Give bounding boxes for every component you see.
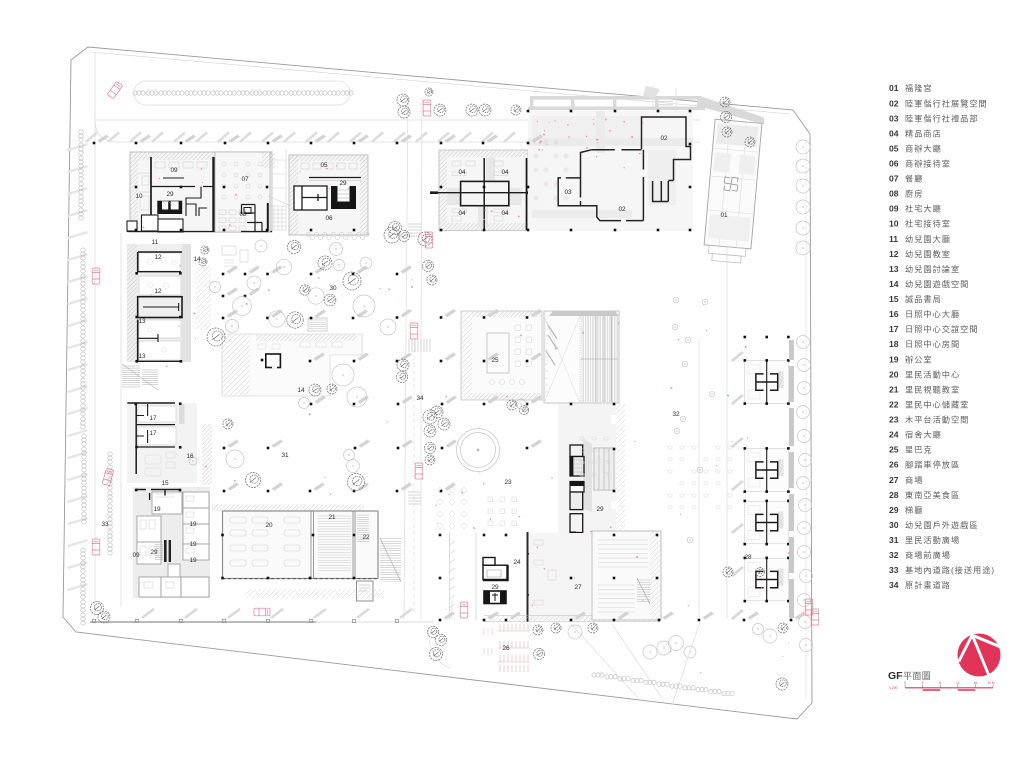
- svg-text:14: 14: [889, 279, 899, 289]
- svg-text:13: 13: [138, 353, 146, 360]
- svg-text:02: 02: [660, 135, 668, 142]
- svg-text:31: 31: [281, 452, 289, 459]
- svg-text:01: 01: [889, 83, 899, 93]
- svg-text:里民活動廣場: 里民活動廣場: [905, 535, 960, 545]
- svg-text:GF: GF: [888, 670, 903, 682]
- svg-text:辦公室: 辦公室: [905, 354, 933, 364]
- svg-text:16: 16: [889, 309, 899, 319]
- svg-text:幼兒園大廳: 幼兒園大廳: [905, 234, 951, 244]
- svg-text:商辦接待室: 商辦接待室: [905, 159, 951, 169]
- svg-text:12: 12: [889, 249, 899, 259]
- svg-text:20: 20: [265, 522, 273, 529]
- svg-text:03: 03: [889, 113, 899, 123]
- svg-text:23: 23: [889, 415, 899, 425]
- svg-text:09: 09: [170, 167, 178, 174]
- svg-text:22: 22: [889, 400, 899, 410]
- svg-text:26: 26: [889, 460, 899, 470]
- svg-text:12: 12: [154, 254, 162, 261]
- svg-text:陸軍偕行社禮品部: 陸軍偕行社禮品部: [905, 113, 979, 123]
- svg-text:21: 21: [328, 514, 336, 521]
- svg-text:誠品書局: 誠品書局: [905, 294, 942, 304]
- svg-text:12: 12: [956, 681, 960, 685]
- svg-text:25: 25: [889, 445, 899, 455]
- svg-text:17: 17: [149, 415, 157, 422]
- svg-text:19: 19: [189, 541, 197, 548]
- svg-text:28: 28: [889, 490, 899, 500]
- svg-text:15: 15: [889, 294, 899, 304]
- svg-text:04: 04: [501, 210, 509, 217]
- svg-text:10: 10: [135, 193, 143, 200]
- svg-text:21: 21: [889, 384, 899, 394]
- svg-text:幼兒園遊戲空間: 幼兒園遊戲空間: [905, 279, 969, 289]
- svg-text:里民中心儲藏室: 里民中心儲藏室: [905, 400, 969, 410]
- svg-text:06: 06: [325, 215, 333, 222]
- svg-text:餐廳: 餐廳: [905, 174, 923, 184]
- svg-text:05: 05: [320, 162, 328, 169]
- svg-text:24: 24: [889, 430, 899, 440]
- svg-text:03: 03: [564, 189, 572, 196]
- svg-text:09: 09: [889, 204, 899, 214]
- svg-text:07: 07: [241, 176, 249, 183]
- svg-text:社宅接待室: 社宅接待室: [905, 219, 951, 229]
- svg-text:33: 33: [101, 521, 109, 528]
- svg-text:07: 07: [889, 174, 899, 184]
- svg-text:09: 09: [132, 552, 140, 559]
- svg-text:日照中心房間: 日照中心房間: [905, 339, 960, 349]
- svg-text:梯廳: 梯廳: [905, 505, 923, 515]
- svg-text:20: 20: [889, 369, 899, 379]
- svg-text:幼兒園教室: 幼兒園教室: [905, 249, 951, 259]
- svg-text:14: 14: [297, 387, 305, 394]
- svg-text:08: 08: [239, 211, 247, 218]
- svg-text:29: 29: [166, 191, 174, 198]
- svg-text:29: 29: [150, 549, 158, 556]
- svg-text:30: 30: [889, 520, 899, 530]
- svg-text:商辦大廳: 商辦大廳: [905, 143, 942, 153]
- svg-text:幼兒園討論室: 幼兒園討論室: [905, 264, 960, 274]
- svg-text:平面圖: 平面圖: [903, 671, 931, 681]
- svg-text:19: 19: [889, 354, 899, 364]
- svg-text:15: 15: [161, 480, 169, 487]
- svg-text:陸軍偕行社展覽空間: 陸軍偕行社展覽空間: [905, 98, 988, 108]
- svg-text:星巴克: 星巴克: [905, 446, 933, 455]
- svg-text:商場: 商場: [905, 475, 923, 485]
- svg-text:29: 29: [339, 180, 347, 187]
- svg-text:32: 32: [672, 411, 680, 418]
- svg-text:里民活動中心: 里民活動中心: [905, 369, 960, 379]
- svg-text:10: 10: [889, 219, 899, 229]
- svg-text:基地內道路(接送用途): 基地內道路(接送用途): [905, 565, 995, 575]
- svg-text:13: 13: [889, 264, 899, 274]
- svg-text:01: 01: [720, 212, 728, 219]
- svg-text:日照中心交誼空間: 日照中心交誼空間: [905, 324, 979, 334]
- svg-text:社宅大廳: 社宅大廳: [905, 204, 942, 214]
- svg-text:廚房: 廚房: [905, 189, 923, 199]
- svg-text:02: 02: [618, 206, 626, 213]
- svg-text:30: 30: [329, 285, 337, 292]
- svg-text:宿舍大廳: 宿舍大廳: [905, 430, 942, 440]
- svg-text:32: 32: [889, 550, 899, 560]
- svg-text:里民視聽教室: 里民視聽教室: [905, 384, 960, 394]
- svg-text:14: 14: [193, 256, 201, 263]
- svg-text:27: 27: [574, 584, 582, 591]
- svg-text:19: 19: [153, 506, 161, 513]
- svg-text:34: 34: [416, 395, 424, 402]
- svg-text:29: 29: [889, 505, 899, 515]
- svg-text:24: 24: [513, 559, 521, 566]
- svg-text:幼兒園戶外遊戲區: 幼兒園戶外遊戲區: [905, 520, 979, 530]
- svg-text:13: 13: [138, 318, 146, 325]
- svg-text:日照中心大廳: 日照中心大廳: [905, 309, 960, 319]
- svg-text:08: 08: [889, 189, 899, 199]
- svg-text:33: 33: [889, 565, 899, 575]
- svg-text:11: 11: [889, 234, 898, 244]
- svg-text:4: 4: [922, 681, 924, 685]
- svg-text:05: 05: [889, 143, 899, 153]
- svg-text:18: 18: [889, 339, 899, 349]
- svg-text:19: 19: [189, 557, 197, 564]
- svg-text:福隆宮: 福隆宮: [905, 83, 933, 93]
- svg-text:腳踏車停放區: 腳踏車停放區: [905, 460, 960, 470]
- svg-text:04: 04: [889, 128, 899, 138]
- svg-text:28: 28: [744, 554, 752, 561]
- svg-text:17: 17: [149, 430, 157, 437]
- svg-text:16: 16: [974, 681, 978, 685]
- svg-text:精品商店: 精品商店: [905, 128, 942, 138]
- svg-text:木平台活動空間: 木平台活動空間: [905, 415, 969, 425]
- svg-text:06: 06: [889, 159, 899, 169]
- svg-text:34: 34: [889, 580, 899, 590]
- svg-text:04: 04: [501, 169, 509, 176]
- svg-text:16: 16: [186, 453, 194, 460]
- svg-text:17: 17: [889, 324, 899, 334]
- svg-text:20 M: 20 M: [987, 681, 994, 685]
- svg-text:19: 19: [189, 521, 197, 528]
- svg-text:29: 29: [596, 506, 604, 513]
- svg-text:02: 02: [889, 98, 899, 108]
- svg-text:8: 8: [939, 681, 941, 685]
- svg-text:12: 12: [154, 288, 162, 295]
- svg-text:04: 04: [458, 210, 466, 217]
- svg-text:11: 11: [152, 239, 159, 246]
- svg-text:31: 31: [889, 535, 899, 545]
- svg-text:25: 25: [491, 357, 499, 364]
- svg-text:23: 23: [504, 479, 512, 486]
- svg-text:04: 04: [458, 169, 466, 176]
- svg-text:27: 27: [889, 475, 899, 485]
- svg-text:1:200: 1:200: [889, 686, 898, 690]
- svg-text:29: 29: [491, 584, 499, 591]
- svg-text:26: 26: [502, 645, 510, 652]
- svg-text:0: 0: [904, 681, 906, 685]
- svg-text:原計畫道路: 原計畫道路: [905, 580, 951, 590]
- svg-text:22: 22: [362, 534, 370, 541]
- svg-text:東南亞美食區: 東南亞美食區: [905, 490, 960, 500]
- svg-text:商場前廣場: 商場前廣場: [905, 550, 951, 560]
